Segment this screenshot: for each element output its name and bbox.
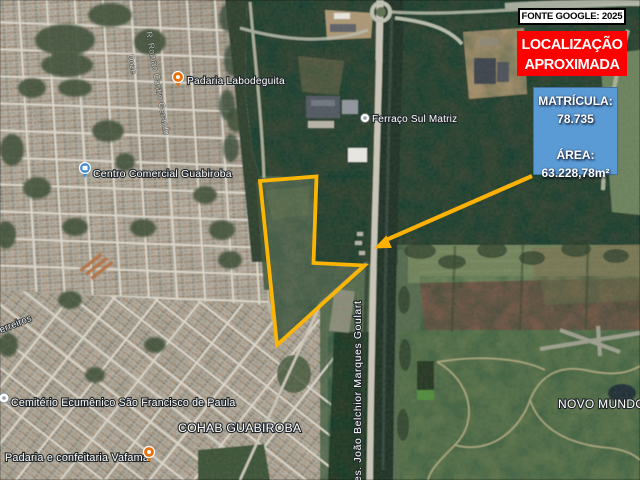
svg-text:Ferraço Sul Matriz: Ferraço Sul Matriz [372, 114, 457, 125]
svg-text:es. João Belchior Marques Goul: es. João Belchior Marques Goulart [352, 301, 364, 480]
svg-text:COHAB GUABIROBA: COHAB GUABIROBA [178, 421, 302, 435]
svg-text:Cemitério Ecumênico São Franci: Cemitério Ecumênico São Francisco de Pau… [11, 397, 236, 409]
svg-text:Padaria e confeitaria Vafama: Padaria e confeitaria Vafama [5, 452, 149, 464]
svg-text:Centro Comercial Guabiroba: Centro Comercial Guabiroba [93, 168, 232, 180]
svg-text:NOVO MUNDO: NOVO MUNDO [558, 397, 640, 411]
svg-text:Padaria Labodeguita: Padaria Labodeguita [187, 76, 285, 87]
